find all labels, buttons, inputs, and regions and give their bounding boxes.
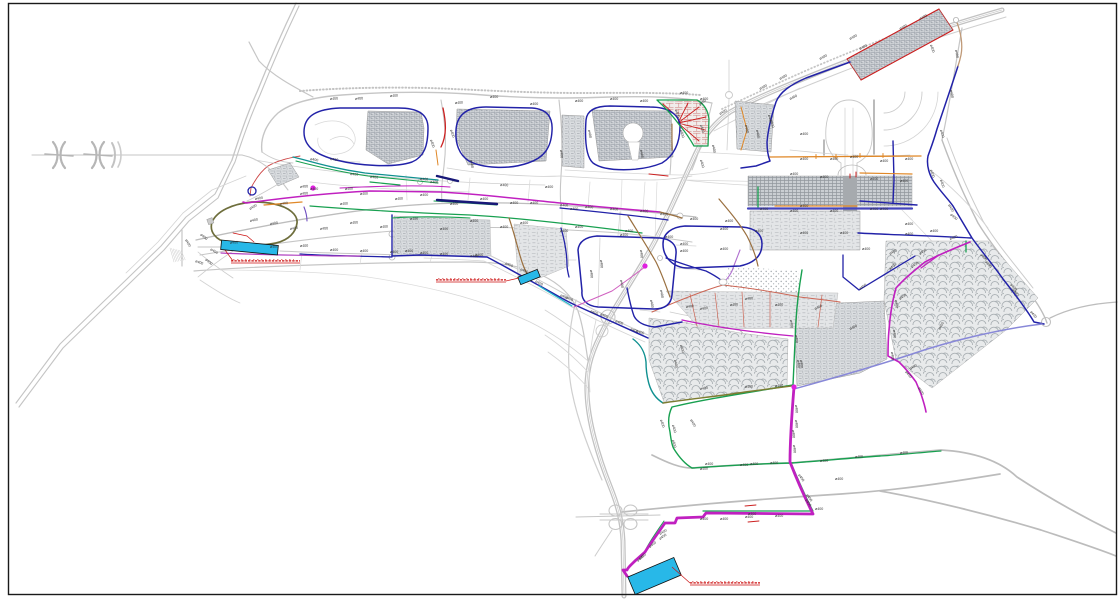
svg-text:ø400: ø400 bbox=[815, 507, 823, 511]
svg-text:ø400: ø400 bbox=[775, 514, 783, 518]
svg-text:ø400: ø400 bbox=[700, 97, 708, 101]
svg-text:ø400: ø400 bbox=[545, 185, 553, 189]
svg-text:ø400: ø400 bbox=[530, 201, 538, 205]
svg-text:ø400: ø400 bbox=[330, 248, 338, 252]
svg-text:ø400: ø400 bbox=[800, 204, 808, 208]
svg-text:ø400: ø400 bbox=[690, 217, 698, 221]
svg-text:ø400: ø400 bbox=[380, 225, 388, 229]
svg-text:ø400: ø400 bbox=[755, 229, 763, 233]
svg-text:ø400: ø400 bbox=[830, 209, 838, 213]
svg-text:ø400: ø400 bbox=[880, 159, 888, 163]
svg-text:ø400: ø400 bbox=[790, 172, 798, 176]
svg-text:ø400: ø400 bbox=[720, 247, 728, 251]
svg-text:ø400: ø400 bbox=[560, 229, 568, 233]
svg-text:ø400: ø400 bbox=[560, 203, 568, 207]
svg-text:ø400: ø400 bbox=[800, 132, 808, 136]
svg-text:ø400: ø400 bbox=[440, 227, 448, 231]
svg-text:ø400: ø400 bbox=[475, 253, 483, 257]
svg-text:ø400: ø400 bbox=[820, 175, 828, 179]
svg-text:ø400: ø400 bbox=[745, 384, 753, 389]
svg-text:ø400: ø400 bbox=[862, 247, 870, 251]
svg-text:ø400: ø400 bbox=[700, 467, 708, 471]
svg-text:ø400: ø400 bbox=[360, 192, 368, 196]
svg-text:ø400: ø400 bbox=[585, 205, 593, 209]
svg-text:ø400: ø400 bbox=[320, 226, 329, 231]
svg-text:ø400: ø400 bbox=[900, 179, 908, 183]
svg-text:ø400: ø400 bbox=[680, 249, 688, 253]
svg-text:ø400: ø400 bbox=[440, 252, 448, 256]
svg-text:ø400: ø400 bbox=[420, 177, 428, 181]
svg-text:ø400: ø400 bbox=[830, 157, 838, 161]
svg-text:ø400: ø400 bbox=[791, 430, 796, 439]
svg-text:ø400: ø400 bbox=[370, 175, 378, 180]
svg-text:ø400: ø400 bbox=[530, 102, 538, 106]
svg-text:ø400: ø400 bbox=[405, 249, 413, 253]
svg-text:ø400: ø400 bbox=[730, 302, 738, 307]
svg-text:ø400: ø400 bbox=[395, 197, 403, 201]
svg-text:ø400: ø400 bbox=[420, 251, 428, 255]
svg-text:ø400: ø400 bbox=[455, 101, 463, 105]
svg-text:ø400: ø400 bbox=[850, 155, 858, 159]
svg-text:ø400: ø400 bbox=[800, 157, 808, 161]
svg-text:ø400: ø400 bbox=[840, 231, 848, 235]
svg-text:ø400: ø400 bbox=[330, 96, 338, 101]
svg-text:ø400: ø400 bbox=[775, 303, 783, 307]
svg-text:ø400: ø400 bbox=[665, 235, 673, 239]
svg-text:ø400: ø400 bbox=[345, 187, 353, 191]
svg-text:ø400: ø400 bbox=[360, 249, 368, 253]
svg-text:ø400: ø400 bbox=[750, 462, 758, 466]
svg-text:ø400: ø400 bbox=[789, 320, 794, 329]
svg-text:ø400: ø400 bbox=[790, 209, 798, 213]
svg-text:ø400: ø400 bbox=[575, 225, 583, 229]
svg-text:ø400: ø400 bbox=[870, 207, 878, 211]
svg-text:ø400: ø400 bbox=[820, 459, 828, 463]
svg-text:ø400: ø400 bbox=[800, 231, 808, 235]
svg-text:ø400: ø400 bbox=[905, 232, 913, 236]
svg-text:ø400: ø400 bbox=[480, 197, 488, 201]
svg-text:ø400: ø400 bbox=[794, 405, 799, 414]
svg-text:ø400: ø400 bbox=[520, 221, 528, 225]
svg-text:ø400: ø400 bbox=[280, 201, 289, 206]
svg-text:ø400: ø400 bbox=[794, 420, 799, 429]
svg-text:ø400: ø400 bbox=[620, 233, 628, 237]
svg-text:ø400: ø400 bbox=[390, 94, 398, 98]
svg-text:ø400: ø400 bbox=[792, 445, 797, 454]
svg-text:ø400: ø400 bbox=[870, 177, 878, 181]
svg-text:ø400: ø400 bbox=[720, 517, 728, 521]
svg-text:ø400: ø400 bbox=[355, 96, 364, 101]
svg-text:ø400: ø400 bbox=[430, 180, 438, 184]
svg-text:ø400: ø400 bbox=[610, 97, 618, 101]
svg-text:ø400: ø400 bbox=[410, 217, 418, 221]
svg-text:ø400: ø400 bbox=[640, 209, 648, 213]
svg-text:ø400: ø400 bbox=[745, 296, 754, 301]
svg-text:ø400: ø400 bbox=[575, 99, 583, 103]
svg-text:ø400: ø400 bbox=[599, 260, 604, 269]
svg-text:ø400: ø400 bbox=[760, 207, 768, 211]
svg-text:ø400: ø400 bbox=[350, 172, 359, 177]
svg-text:ø400: ø400 bbox=[625, 229, 633, 233]
svg-text:ø400: ø400 bbox=[796, 360, 801, 369]
svg-text:ø400: ø400 bbox=[700, 517, 708, 521]
svg-text:ø400: ø400 bbox=[894, 300, 899, 309]
svg-text:ø400: ø400 bbox=[610, 207, 618, 211]
svg-text:ø400: ø400 bbox=[775, 384, 783, 388]
svg-text:ø400: ø400 bbox=[310, 187, 318, 191]
svg-text:ø400: ø400 bbox=[880, 207, 888, 211]
svg-text:ø400: ø400 bbox=[470, 219, 478, 223]
svg-text:ø400: ø400 bbox=[420, 193, 428, 197]
svg-text:ø400: ø400 bbox=[270, 245, 278, 249]
svg-text:ø400: ø400 bbox=[350, 220, 358, 225]
svg-text:ø400: ø400 bbox=[639, 250, 644, 259]
svg-text:ø400: ø400 bbox=[500, 225, 508, 229]
svg-text:ø400: ø400 bbox=[855, 455, 863, 459]
svg-text:ø400: ø400 bbox=[720, 227, 728, 231]
svg-text:ø400: ø400 bbox=[559, 150, 564, 159]
svg-text:ø400: ø400 bbox=[892, 330, 897, 339]
svg-text:ø400: ø400 bbox=[390, 250, 398, 254]
svg-text:ø400: ø400 bbox=[794, 335, 799, 344]
svg-text:ø400: ø400 bbox=[890, 352, 895, 361]
svg-text:ø400: ø400 bbox=[900, 451, 908, 455]
svg-text:ø400: ø400 bbox=[300, 244, 308, 248]
svg-text:ø400: ø400 bbox=[660, 212, 668, 216]
svg-text:ø400: ø400 bbox=[745, 515, 753, 519]
svg-text:ø400: ø400 bbox=[500, 183, 508, 187]
svg-text:ø400: ø400 bbox=[490, 95, 498, 99]
svg-text:ø400: ø400 bbox=[835, 477, 843, 481]
svg-text:ø400: ø400 bbox=[930, 229, 938, 233]
svg-text:ø400: ø400 bbox=[340, 202, 348, 206]
svg-text:ø400: ø400 bbox=[686, 304, 695, 309]
svg-text:ø400: ø400 bbox=[905, 157, 913, 161]
svg-text:ø400: ø400 bbox=[770, 461, 778, 465]
svg-text:ø400: ø400 bbox=[589, 270, 594, 279]
svg-text:ø400: ø400 bbox=[450, 202, 458, 206]
svg-text:ø400: ø400 bbox=[640, 99, 648, 103]
svg-text:ø400: ø400 bbox=[680, 91, 688, 95]
svg-text:ø400: ø400 bbox=[680, 242, 688, 246]
svg-text:ø400: ø400 bbox=[905, 222, 913, 226]
svg-text:ø400: ø400 bbox=[300, 191, 309, 196]
svg-text:ø400: ø400 bbox=[230, 240, 239, 245]
svg-text:ø400: ø400 bbox=[570, 207, 578, 211]
svg-text:ø400: ø400 bbox=[740, 463, 748, 467]
svg-text:ø400: ø400 bbox=[300, 184, 309, 189]
svg-text:ø400: ø400 bbox=[725, 219, 733, 223]
svg-text:ø400: ø400 bbox=[705, 462, 713, 466]
svg-text:ø400: ø400 bbox=[510, 201, 518, 205]
